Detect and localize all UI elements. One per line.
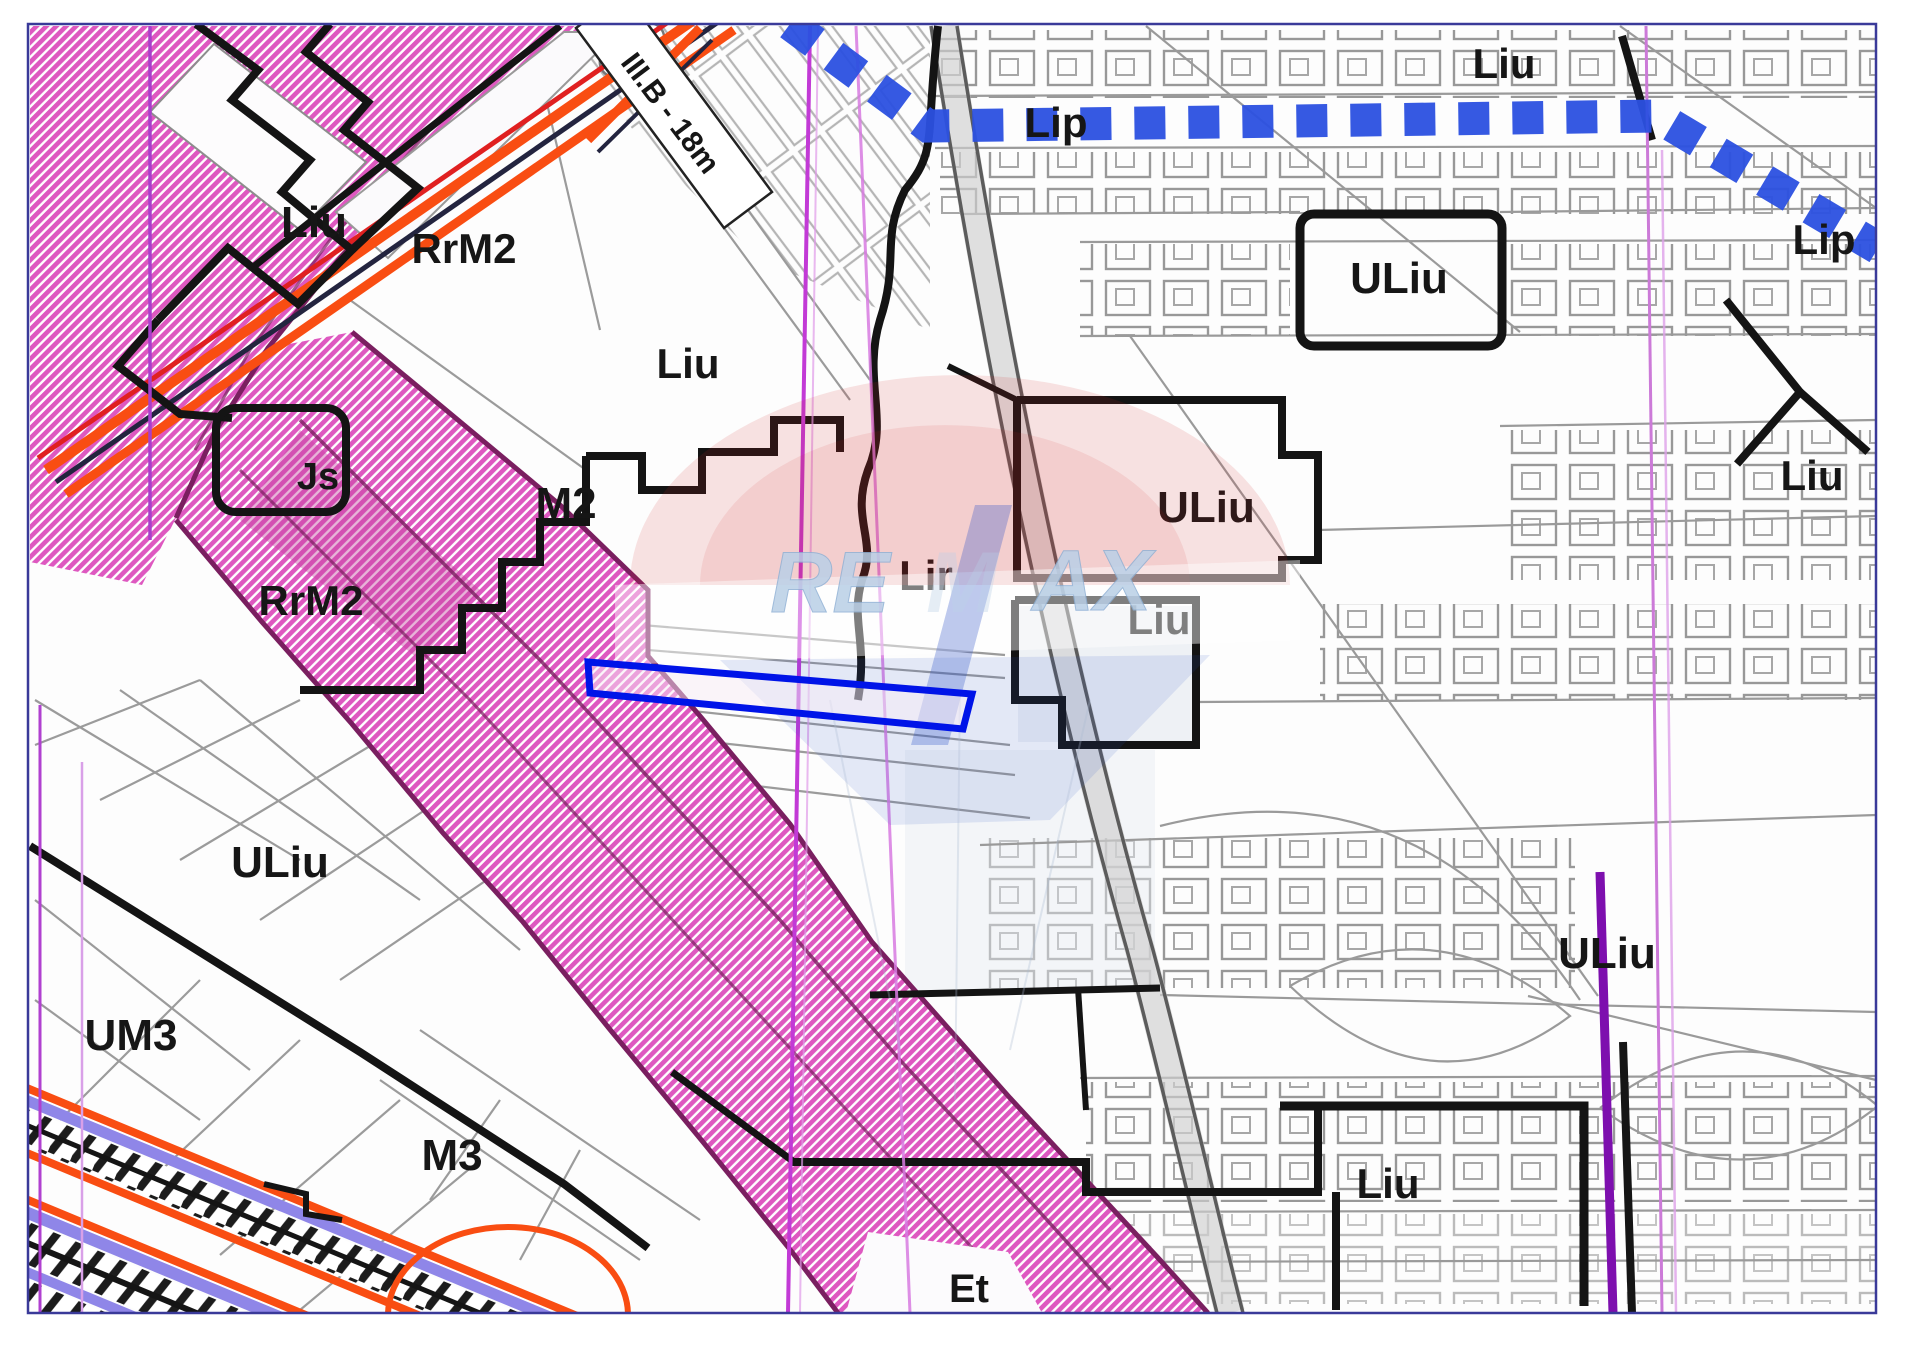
zone-label-m3: M3 [421, 1131, 482, 1180]
zone-label-lip-1: Lip [1025, 99, 1088, 146]
zone-label-rrm2-2: RrM2 [258, 577, 363, 624]
zone-label-um3: UM3 [85, 1011, 178, 1060]
zone-label-m2: M2 [535, 479, 596, 528]
zone-label-liu-1: Liu [281, 198, 347, 247]
zone-label-lip-2: Lip [1793, 216, 1856, 263]
watermark-re: RE [770, 535, 892, 631]
zone-label-liu-6: Liu [1357, 1160, 1420, 1207]
zoning-map-page: III.B - 18m [0, 0, 1920, 1358]
zone-label-liu-2: Liu [657, 340, 720, 387]
zone-label-js: Js [297, 456, 339, 498]
zone-label-rrm2-1: RrM2 [411, 225, 516, 272]
zone-label-liu-4: Liu [1781, 452, 1844, 499]
watermark-m: M [926, 535, 1000, 631]
zone-label-liu-3: Liu [1473, 40, 1536, 87]
zone-label-et: Et [949, 1267, 989, 1311]
watermark-ax: AX [1030, 533, 1156, 629]
zone-label-uliu-4: ULiu [1558, 929, 1656, 978]
zone-label-uliu-1: ULiu [1350, 254, 1448, 303]
zoning-map-canvas[interactable]: III.B - 18m [0, 0, 1920, 1358]
zone-label-uliu-3: ULiu [231, 838, 329, 887]
